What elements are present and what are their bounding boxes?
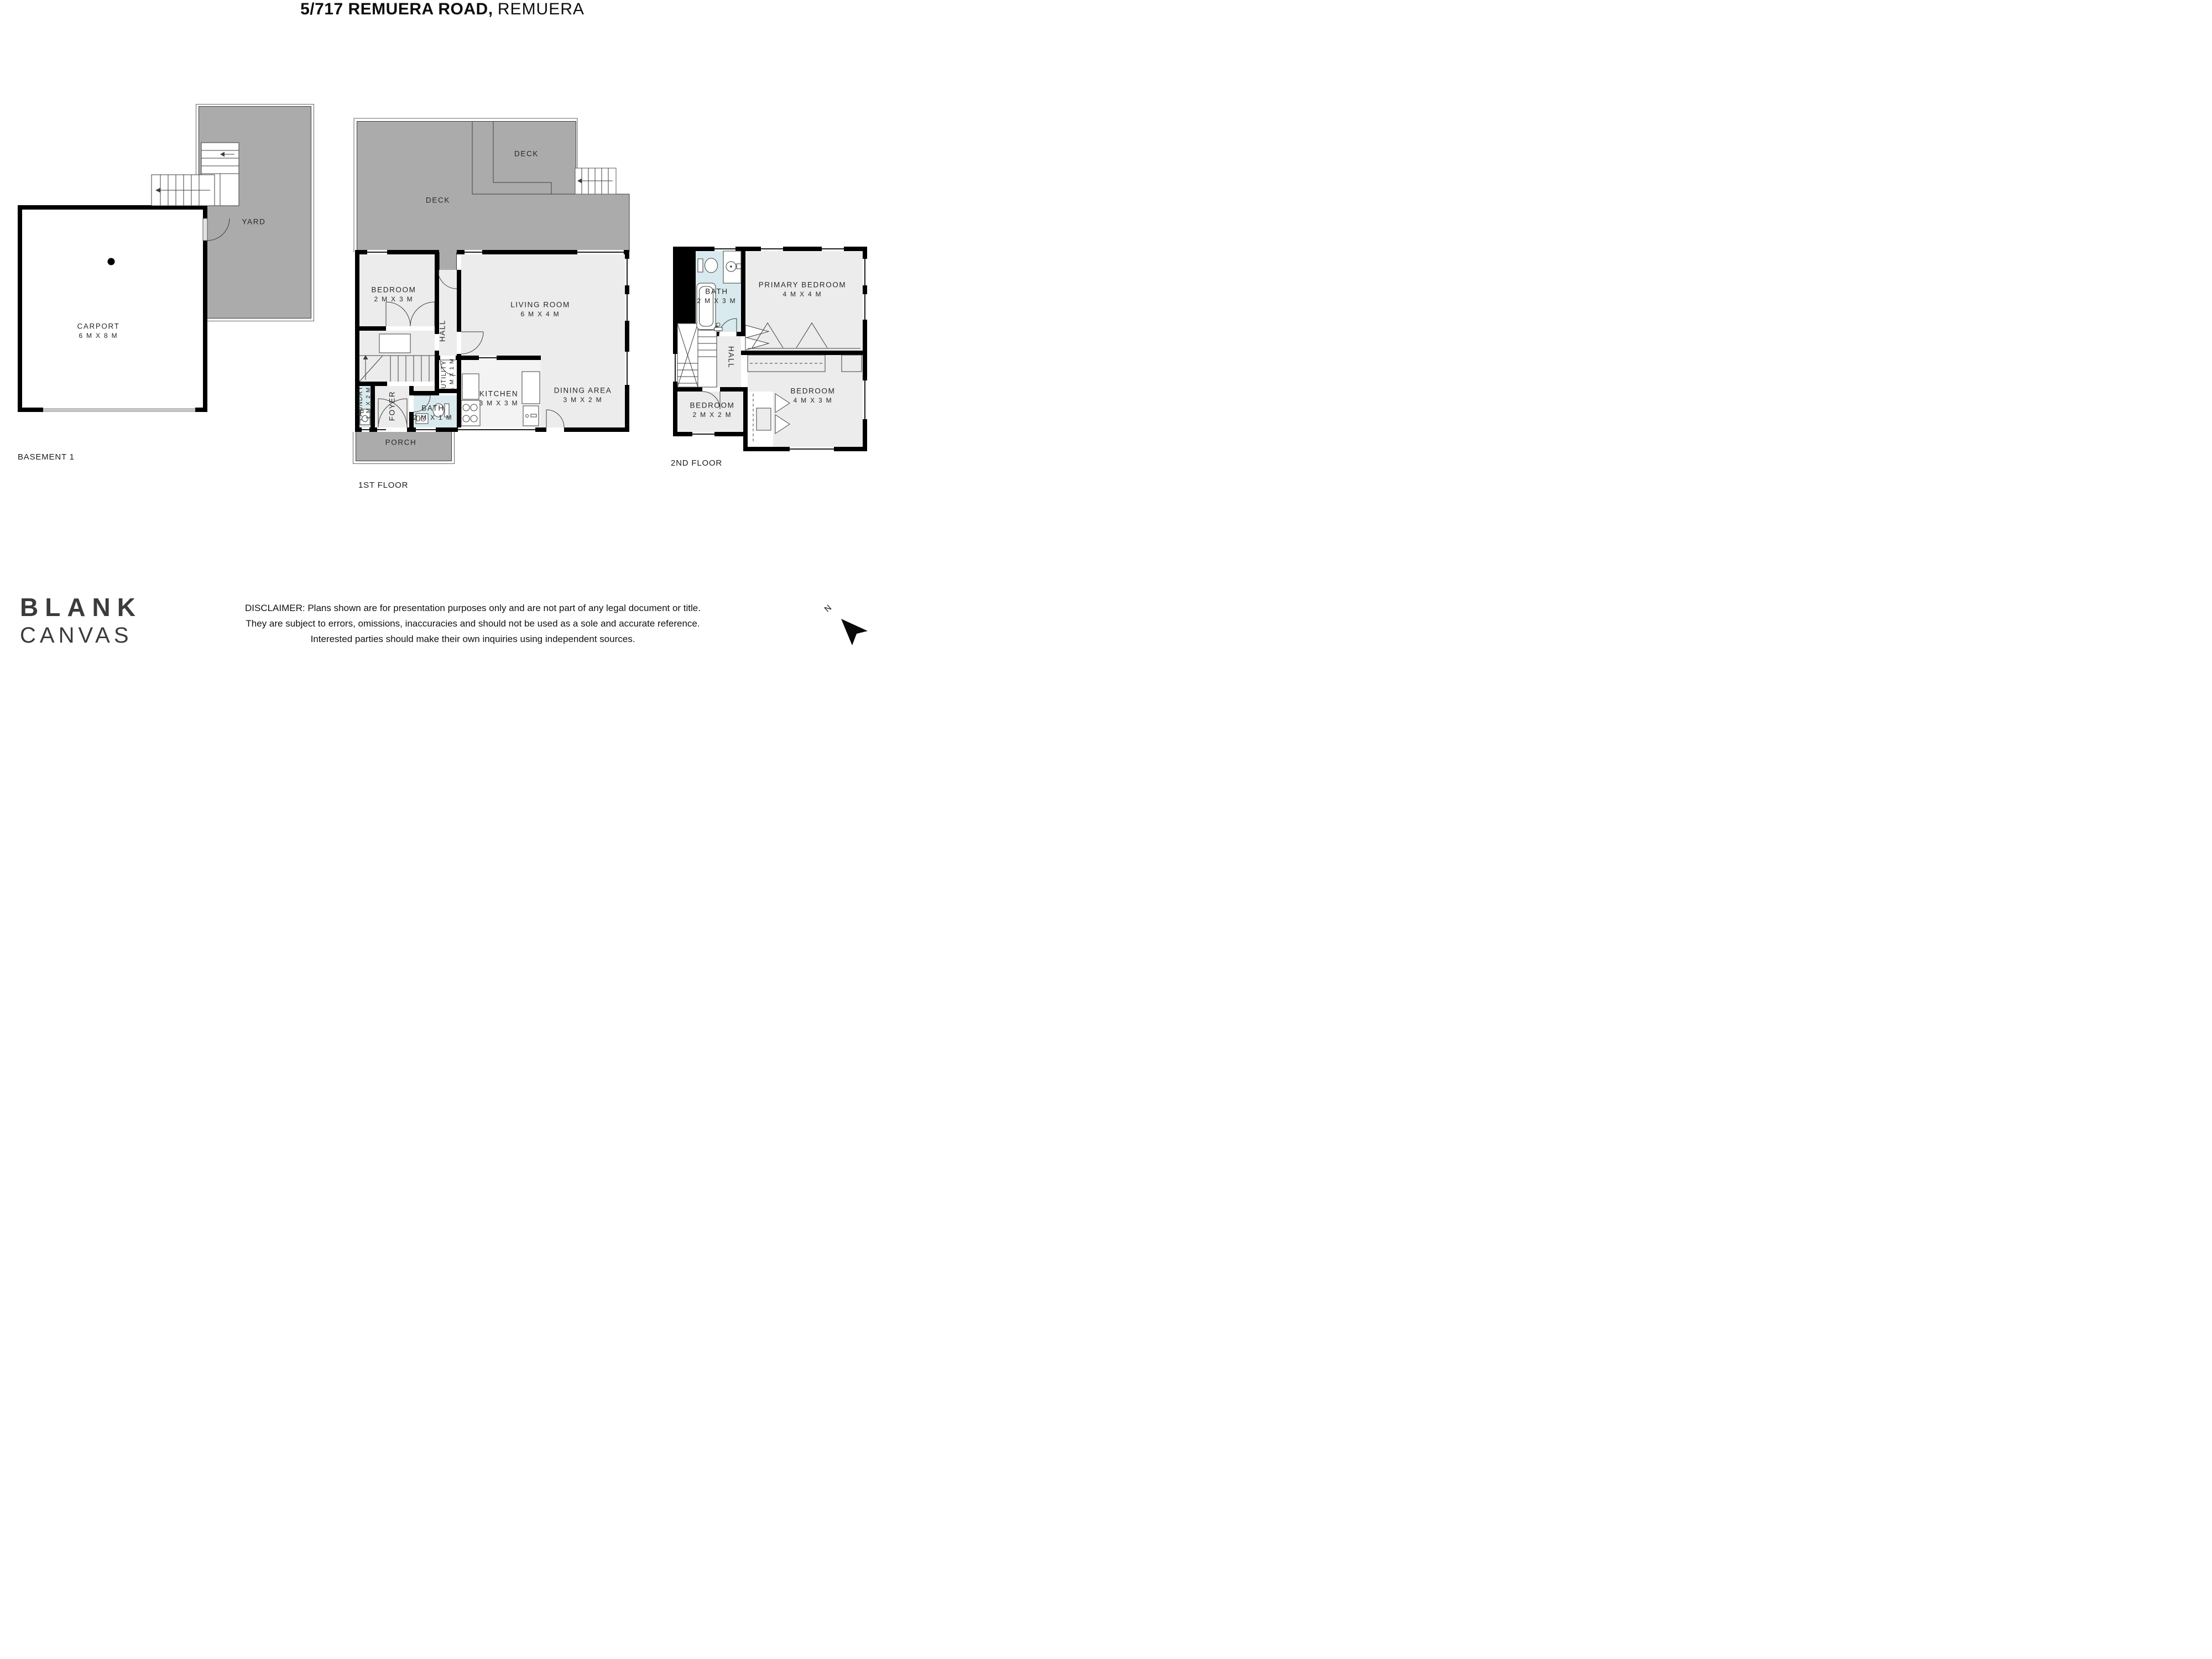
room-label-bedroom: BEDROOM bbox=[372, 286, 416, 294]
room-dims-bedroom: 2 M X 3 M bbox=[374, 295, 414, 303]
property-title: 5/717 REMUERA ROAD, REMUERA bbox=[0, 0, 885, 19]
utility-dims: 1 M X 1 M bbox=[448, 358, 455, 391]
floor-label-first: 1ST FLOOR bbox=[358, 481, 408, 490]
disclaimer: DISCLAIMER: Plans shown are for presenta… bbox=[138, 601, 807, 647]
room-label-foyer: FOYER bbox=[388, 391, 397, 421]
room-dims-kitchen: 3 M X 3 M bbox=[479, 399, 519, 407]
disclaimer-line: Interested parties should make their own… bbox=[138, 632, 807, 647]
room-dims-bath2: 2 M X 3 M bbox=[697, 297, 737, 305]
room-label-dining: DINING AREA bbox=[554, 387, 612, 395]
labels-layer: CARPORT 6 M X 8 M YARD BASEMENT 1 DECK D… bbox=[0, 0, 885, 664]
logo-line2: CANVAS bbox=[20, 624, 142, 646]
room-label-living: LIVING ROOM bbox=[510, 301, 570, 309]
disclaimer-line: DISCLAIMER: Plans shown are for presenta… bbox=[138, 601, 807, 616]
room-dims-bedroom-large: 4 M X 3 M bbox=[794, 397, 833, 404]
room-label-bath1: BATH bbox=[421, 404, 444, 413]
room-dims-bedroom-small: 2 M X 2 M bbox=[693, 411, 732, 419]
room-label-deck-lower: DECK bbox=[426, 196, 450, 205]
floor-plan-sheet: CARPORT 6 M X 8 M YARD BASEMENT 1 DECK D… bbox=[0, 0, 885, 664]
laundry-dims: 1 M X 2 M bbox=[365, 385, 372, 420]
room-label-yard: YARD bbox=[242, 218, 266, 226]
room-label-bedroom-small: BEDROOM bbox=[690, 401, 735, 410]
logo-line1: BLANK bbox=[20, 594, 142, 620]
room-label-carport: CARPORT bbox=[77, 322, 120, 331]
property-address: 5/717 REMUERA ROAD, bbox=[300, 0, 493, 18]
room-label-bedroom-large: BEDROOM bbox=[791, 387, 836, 395]
disclaimer-line: They are subject to errors, omissions, i… bbox=[138, 616, 807, 632]
property-suburb: REMUERA bbox=[498, 0, 585, 18]
room-label-hall2: HALL bbox=[727, 346, 735, 368]
room-dims-primary: 4 M X 4 M bbox=[783, 290, 822, 298]
room-label-laundry: LAUNDRY 1 M X 2 M bbox=[357, 385, 372, 420]
floor-label-second: 2ND FLOOR bbox=[671, 458, 722, 468]
room-label-bath2: BATH bbox=[705, 288, 728, 296]
room-dims-dining: 3 M X 2 M bbox=[564, 396, 603, 404]
room-label-porch: PORCH bbox=[385, 439, 417, 447]
room-dims-living: 6 M X 4 M bbox=[521, 310, 560, 318]
room-label-kitchen: KITCHEN bbox=[479, 390, 518, 398]
room-dims-carport: 6 M X 8 M bbox=[79, 332, 118, 340]
room-dims-bath1: 2 M X 1 M bbox=[414, 414, 453, 421]
room-label-deck-upper: DECK bbox=[514, 150, 539, 158]
room-label-hall: HALL bbox=[439, 320, 447, 342]
laundry-name: LAUNDRY bbox=[357, 385, 364, 420]
room-label-utility: UTILITY 1 M X 1 M bbox=[441, 358, 455, 391]
floor-label-basement: BASEMENT 1 bbox=[18, 452, 75, 462]
room-label-primary: PRIMARY BEDROOM bbox=[759, 281, 847, 289]
blank-canvas-logo: BLANK CANVAS bbox=[20, 594, 142, 646]
utility-name: UTILITY bbox=[441, 358, 447, 391]
